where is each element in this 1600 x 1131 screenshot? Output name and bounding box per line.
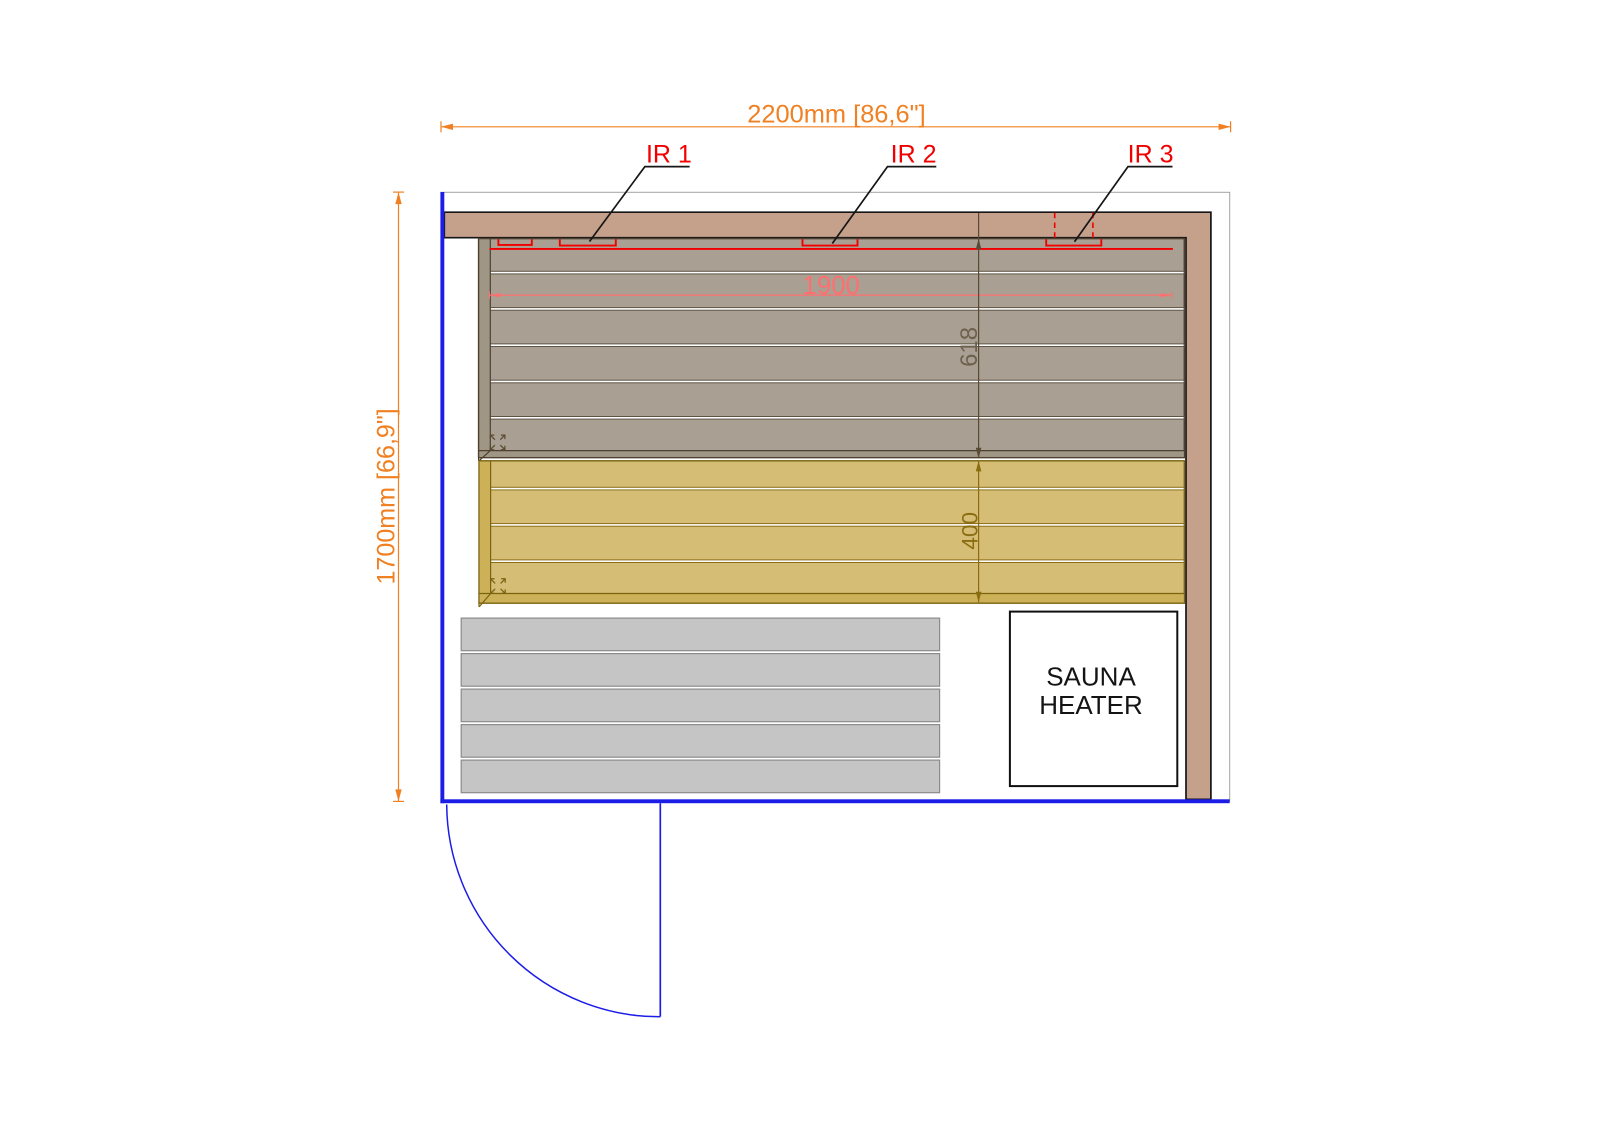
svg-text:2200mm [86,6"]: 2200mm [86,6"] (747, 101, 925, 129)
svg-text:IR 1: IR 1 (646, 141, 692, 169)
svg-text:HEATER: HEATER (1039, 690, 1143, 720)
svg-text:618: 618 (956, 327, 983, 367)
svg-text:IR 3: IR 3 (1128, 141, 1174, 169)
svg-text:IR 2: IR 2 (891, 141, 937, 169)
svg-text:1700mm [66,9"]: 1700mm [66,9"] (373, 408, 401, 584)
svg-text:1900: 1900 (803, 272, 860, 300)
svg-text:SAUNA: SAUNA (1046, 662, 1136, 692)
svg-text:400: 400 (957, 512, 982, 550)
